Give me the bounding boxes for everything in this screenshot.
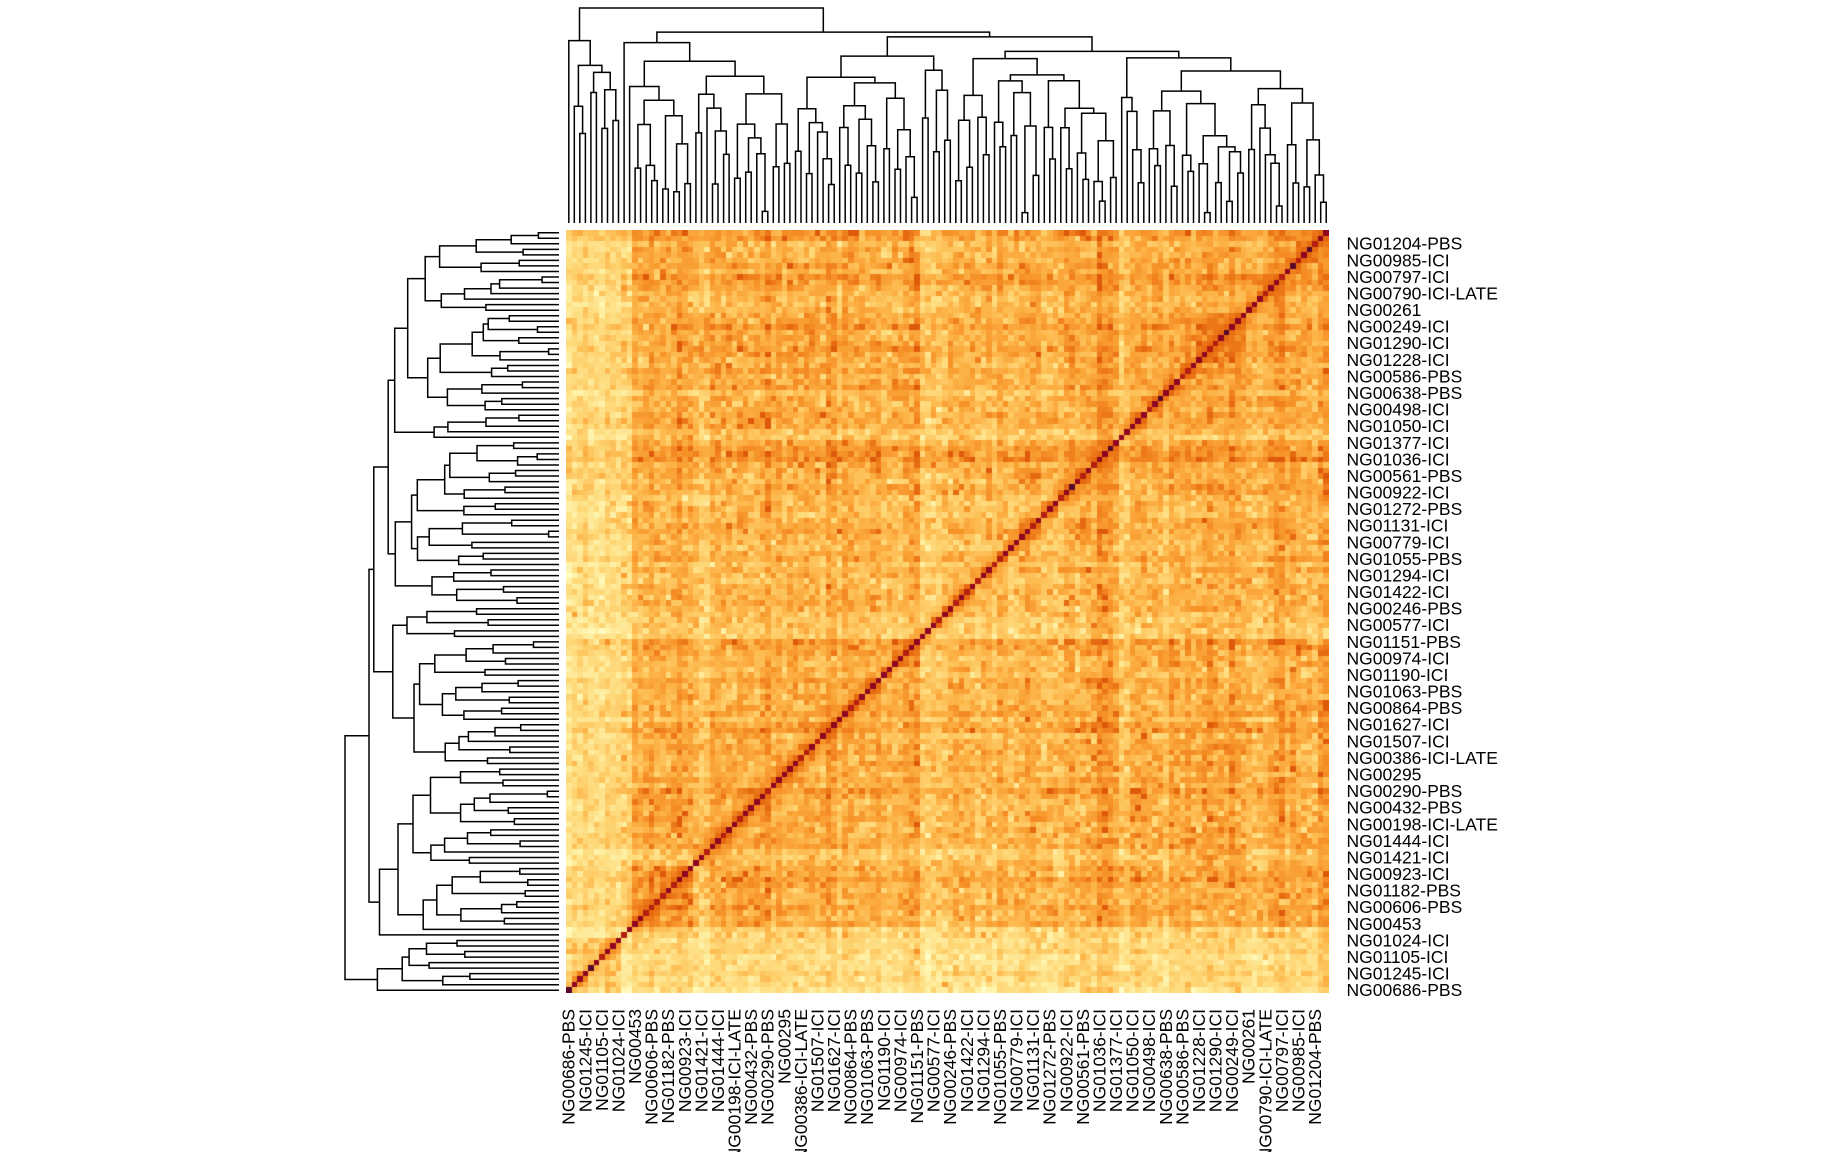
svg-text:NG01204-PBS: NG01204-PBS — [1305, 1009, 1325, 1125]
svg-text:NG00686-PBS: NG00686-PBS — [1347, 980, 1463, 1000]
